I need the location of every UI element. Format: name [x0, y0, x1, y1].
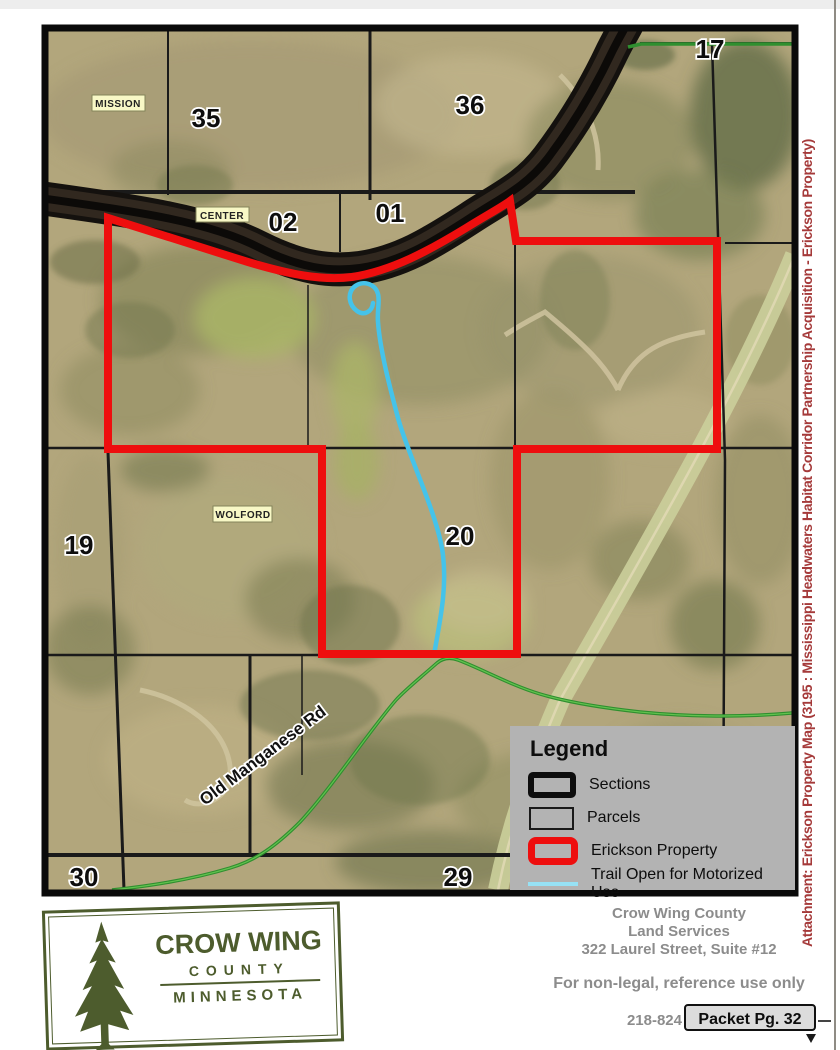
logo-text: CROW WING COUNTY MINNESOTA — [146, 925, 333, 1008]
footer-phone: 218-824 — [594, 1012, 682, 1029]
footer-org-line3: 322 Laurel Street, Suite #12 — [540, 941, 818, 959]
packet-page-badge: Packet Pg. 32 — [684, 1004, 816, 1031]
footer-info: Crow Wing County Land Services 322 Laure… — [540, 905, 818, 993]
legend-item-trail: Trail Open for Motorized Use — [528, 871, 795, 897]
badge-tick-line — [818, 1020, 831, 1022]
section-number-35: 35 — [192, 103, 221, 133]
packet-page: MISSION CENTER WOLFORD 35 36 17 02 01 19… — [0, 0, 840, 1050]
section-number-29: 29 — [444, 862, 473, 892]
erickson-property-swatch-icon — [528, 837, 578, 865]
county-logo: CROW WING COUNTY MINNESOTA — [42, 901, 344, 1050]
township-label-wolford: WOLFORD — [215, 510, 270, 521]
footer-disclaimer: For non-legal, reference use only — [540, 975, 818, 993]
section-number-30: 30 — [70, 862, 99, 892]
section-number-01: 01 — [376, 198, 405, 228]
legend: Legend Sections Parcels Erickson Propert… — [510, 726, 795, 890]
attachment-sidebar-text: Attachment: Erickson Property Map (3195 … — [799, 29, 823, 947]
logo-subtitle: COUNTY — [147, 959, 332, 981]
township-label-mission: MISSION — [95, 99, 141, 110]
page-edge-line — [834, 0, 836, 1050]
trail-line-icon — [528, 882, 578, 886]
legend-item-sections: Sections — [528, 772, 795, 798]
legend-title: Legend — [530, 736, 795, 762]
footer-org-line1: Crow Wing County — [540, 905, 818, 923]
legend-item-erickson-property: Erickson Property — [528, 838, 795, 864]
township-label-center: CENTER — [200, 211, 244, 222]
logo-name: CROW WING — [146, 925, 332, 962]
section-number-19: 19 — [65, 530, 94, 560]
sections-swatch-icon — [528, 772, 576, 798]
section-number-02: 02 — [269, 207, 298, 237]
pine-tree-icon — [51, 916, 155, 1050]
section-number-20: 20 — [446, 521, 475, 551]
footer-org-line2: Land Services — [540, 923, 818, 941]
section-number-17: 17 — [696, 34, 725, 64]
legend-item-parcels: Parcels — [528, 805, 795, 831]
section-number-36: 36 — [456, 90, 485, 120]
badge-pointer-icon — [806, 1034, 816, 1043]
parcels-swatch-icon — [529, 807, 574, 830]
